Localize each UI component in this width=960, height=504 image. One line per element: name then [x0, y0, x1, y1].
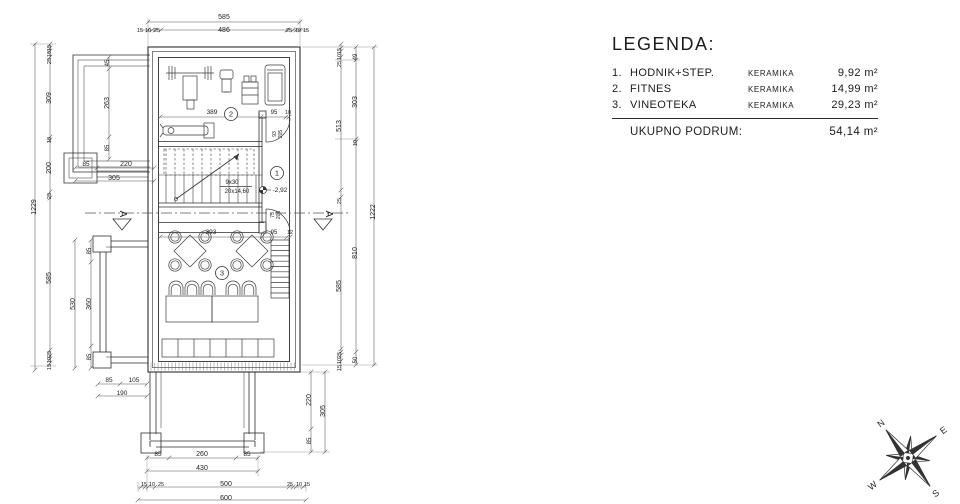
- legend-cell: HODNIK+STEP.: [630, 67, 748, 79]
- treadmill-icon: [265, 65, 285, 105]
- walls-annex-lower-left: [93, 236, 148, 368]
- room-marker-number: 2: [229, 110, 233, 119]
- legend: LEGENDA: 1.HODNIK+STEP.KERAMIKA9,92 m²2.…: [612, 34, 878, 138]
- dim-label: 95: [271, 110, 278, 116]
- legend-total-row: UKUPNO PODRUM: 54,14 m²: [612, 126, 878, 138]
- dim-label: 15: [304, 482, 310, 488]
- dim-label: 220: [306, 394, 313, 406]
- room-marker-number: 1: [275, 169, 279, 178]
- dim-label: 393: [206, 229, 217, 236]
- rowing-machine-icon: [160, 123, 214, 138]
- dim-label: 25: [337, 61, 343, 67]
- compass-south-label: S: [930, 488, 941, 500]
- weight-machine-icon: [242, 76, 258, 104]
- floor-plan-drawing: 5851510254862510151229151025309102002558…: [0, 0, 400, 504]
- dim-label: 85: [243, 451, 251, 458]
- wall-hatch: [151, 363, 295, 371]
- dim-label: 15: [303, 28, 309, 34]
- dim-label: 85: [105, 377, 113, 384]
- dim-label: 309: [46, 92, 53, 104]
- dim-label: 25: [47, 58, 53, 64]
- dim-label: 15: [137, 28, 143, 34]
- legend-total-area: 54,14 m²: [822, 126, 878, 138]
- compass-east-label: E: [938, 425, 949, 437]
- dim-label: 10: [149, 482, 155, 488]
- dim-label: 20x14,60: [225, 189, 250, 195]
- dim-label: 10: [353, 140, 359, 146]
- dim-label: 9x30: [225, 180, 239, 186]
- legend-cell: KERAMIKA: [748, 69, 822, 78]
- legend-row: 1.HODNIK+STEP.KERAMIKA9,92 m²: [612, 67, 878, 79]
- dim-label: 25: [47, 193, 53, 199]
- legend-rows: 1.HODNIK+STEP.KERAMIKA9,92 m²2.FITNESKER…: [612, 67, 878, 111]
- table-icon: [174, 235, 268, 267]
- dim-label: 85: [105, 144, 111, 151]
- legend-cell: KERAMIKA: [748, 101, 822, 110]
- dim-label: 85: [154, 451, 162, 458]
- dim-label: 500: [220, 481, 232, 488]
- walls-annex-top-left: [64, 55, 150, 183]
- walls-main-building: [148, 47, 300, 372]
- legend-row: 3.VINEOTEKAKERAMIKA29,23 m²: [612, 99, 878, 111]
- section-marker-right: [314, 219, 332, 230]
- dim-label: 220: [120, 161, 132, 168]
- dim-label: 25: [158, 482, 164, 488]
- dim-label: 389: [207, 109, 218, 116]
- dim-label: 25: [286, 28, 292, 34]
- extension-lines: [30, 18, 378, 492]
- vineoteka-furniture: [162, 231, 289, 357]
- dim-label: 25: [287, 482, 293, 488]
- dim-label: 10: [295, 28, 301, 34]
- room-marker-number: 3: [220, 269, 224, 278]
- legend-divider: [612, 118, 878, 119]
- dim-label: 10: [47, 51, 53, 57]
- dim-label: 585: [336, 280, 343, 292]
- dim-label: 15: [337, 365, 343, 371]
- legend-cell: 9,92 m²: [822, 67, 878, 79]
- legend-cell: 29,23 m²: [822, 99, 878, 111]
- legend-cell: KERAMIKA: [748, 85, 822, 94]
- dim-label: 10: [337, 358, 343, 364]
- dim-label: 10: [296, 482, 302, 488]
- dim-label: 430: [196, 465, 208, 472]
- legend-cell: 14,99 m²: [822, 83, 878, 95]
- elevation-marker: [260, 187, 272, 194]
- wine-cabinets: [162, 339, 274, 357]
- dim-label: A: [323, 211, 334, 218]
- legend-cell: VINEOTEKA: [630, 99, 748, 111]
- dim-label: 263: [104, 97, 111, 109]
- dim-label: -2,92: [273, 187, 288, 194]
- dim-label: 49: [353, 53, 359, 60]
- dim-label: 15: [47, 45, 53, 51]
- section-marker-left: [113, 219, 131, 230]
- compass-north-label: N: [875, 417, 886, 429]
- hatch-lines: [151, 363, 295, 371]
- dim-label: 585: [218, 14, 230, 21]
- legend-cell: FITNES: [630, 83, 748, 95]
- dim-label: 810: [352, 247, 359, 259]
- compass-rose: N E S W: [850, 408, 960, 504]
- dim-label: 486: [218, 27, 230, 34]
- floor-plan-sheet: 5851510254862510151229151025309102002558…: [0, 0, 960, 504]
- dim-label: 10: [47, 137, 53, 143]
- legend-cell: 3.: [612, 99, 630, 111]
- dim-label: 305: [320, 405, 327, 417]
- dim-label: 530: [70, 298, 77, 310]
- dim-label: 200: [46, 162, 53, 174]
- dim-label: 25: [154, 28, 160, 34]
- bar-chairs: [169, 281, 256, 295]
- legend-total-label: UKUPNO PODRUM:: [630, 126, 822, 138]
- dim-label: 85: [307, 437, 313, 444]
- compass-west-label: W: [866, 479, 879, 492]
- dim-label: 305: [108, 175, 120, 182]
- dim-label: 513: [336, 120, 343, 132]
- dim-label: A: [117, 211, 128, 218]
- dim-label: 585: [46, 272, 53, 284]
- dim-label: 600: [220, 495, 232, 502]
- dim-label: 45: [105, 59, 111, 66]
- dim-label: 1229: [31, 199, 38, 215]
- dim-label: 205: [276, 211, 282, 220]
- dim-label: 85: [87, 353, 93, 360]
- dim-label: 260: [196, 451, 208, 458]
- dim-label: 25: [337, 198, 343, 204]
- legend-title: LEGENDA:: [612, 34, 878, 55]
- legend-cell: 1.: [612, 67, 630, 79]
- walls-annex-bottom: [141, 372, 264, 453]
- dim-label: 205: [278, 130, 284, 139]
- dim-label: 1222: [370, 204, 377, 220]
- dim-label: 10: [47, 357, 53, 363]
- legend-row: 2.FITNESKERAMIKA14,99 m²: [612, 83, 878, 95]
- dim-label: 85: [87, 247, 93, 254]
- dim-label: 15: [141, 482, 147, 488]
- dim-label: 50: [353, 356, 359, 363]
- dim-label: 190: [117, 390, 128, 397]
- dim-label: 10: [285, 110, 291, 116]
- dim-label: 85: [82, 161, 90, 168]
- dim-label: 360: [86, 298, 93, 310]
- dim-label: 95: [271, 230, 278, 236]
- dim-label: 10: [145, 28, 151, 34]
- bar-counter: [166, 296, 258, 322]
- dim-label: 12: [287, 230, 293, 236]
- bar-chair-icon: [169, 281, 256, 295]
- dim-label: 25: [47, 351, 53, 357]
- dim-label: 15: [47, 364, 53, 370]
- dim-label: 25: [337, 352, 343, 358]
- dim-label: 105: [129, 377, 140, 384]
- wine-rack: [271, 240, 289, 298]
- dim-label: 303: [352, 96, 359, 108]
- exercise-bike-icon: [220, 70, 233, 92]
- dim-label: 10: [337, 54, 343, 60]
- dim-label: 15: [337, 48, 343, 54]
- legend-cell: 2.: [612, 83, 630, 95]
